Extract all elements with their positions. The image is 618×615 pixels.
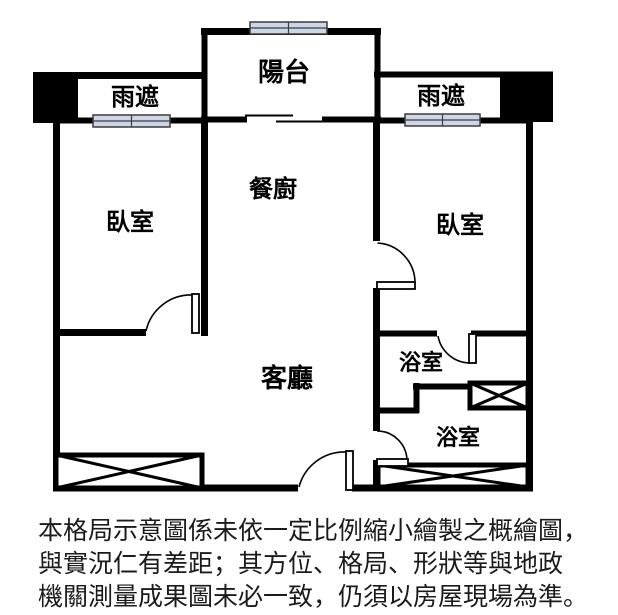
- disclaimer-line-3: 機關測量成果圖未必一致，仍須以房屋現場為準。: [38, 583, 588, 610]
- wall-corner-block-right: [500, 74, 553, 122]
- door-bedroom-left: [146, 294, 199, 333]
- disclaimer-line-1: 本格局示意圖係未依一定比例縮小繪製之概繪圖，: [38, 517, 588, 545]
- label-dining-kitchen: 餐廚: [249, 175, 297, 203]
- hatch-box-bottom-left: [56, 455, 202, 488]
- door-bathroom-lower: [377, 431, 408, 466]
- door-entrance: [299, 451, 353, 490]
- door-bathroom-upper: [438, 334, 476, 363]
- hatch-box-bottom-right: [378, 465, 528, 487]
- label-bedroom-right: 臥室: [436, 211, 484, 239]
- door-arc: [377, 431, 407, 461]
- window-rain-cover-left: [93, 115, 170, 127]
- door-leaf: [469, 334, 476, 363]
- floor-plan: 陽台 雨遮 雨遮 餐廚 臥室 臥室 客廳 浴室 浴室 本格局示意圖係未依一定比例…: [0, 0, 618, 610]
- disclaimer: 本格局示意圖係未依一定比例縮小繪製之概繪圖， 與實況仁有差距；其方位、格局、形狀…: [38, 517, 588, 610]
- door-arc: [378, 243, 416, 283]
- door-bedroom-right: [377, 243, 415, 289]
- label-living-room: 客廳: [261, 363, 313, 393]
- door-leaf: [377, 459, 408, 466]
- door-arc: [146, 295, 193, 331]
- label-balcony: 陽台: [258, 57, 310, 87]
- floor-plan-svg: 陽台 雨遮 雨遮 餐廚 臥室 臥室 客廳 浴室 浴室 本格局示意圖係未依一定比例…: [0, 0, 618, 610]
- label-rain-cover-left: 雨遮: [111, 83, 159, 111]
- label-bathroom-upper: 浴室: [399, 350, 443, 375]
- label-rain-cover-right: 雨遮: [417, 82, 465, 110]
- window-rain-cover-right: [405, 114, 480, 126]
- window-balcony: [250, 22, 327, 34]
- door-leaf: [192, 294, 199, 333]
- wall-corner-block-left: [33, 72, 78, 123]
- sliding-door-balcony: [245, 116, 322, 122]
- label-bathroom-lower: 浴室: [436, 425, 480, 450]
- disclaimer-line-2: 與實況仁有差距；其方位、格局、形狀等與地政: [38, 550, 563, 578]
- door-leaf: [377, 282, 415, 289]
- door-arc: [299, 452, 346, 487]
- door-leaf: [346, 451, 353, 490]
- hatch-box-pipe-shaft: [470, 383, 528, 408]
- label-bedroom-left: 臥室: [106, 208, 154, 236]
